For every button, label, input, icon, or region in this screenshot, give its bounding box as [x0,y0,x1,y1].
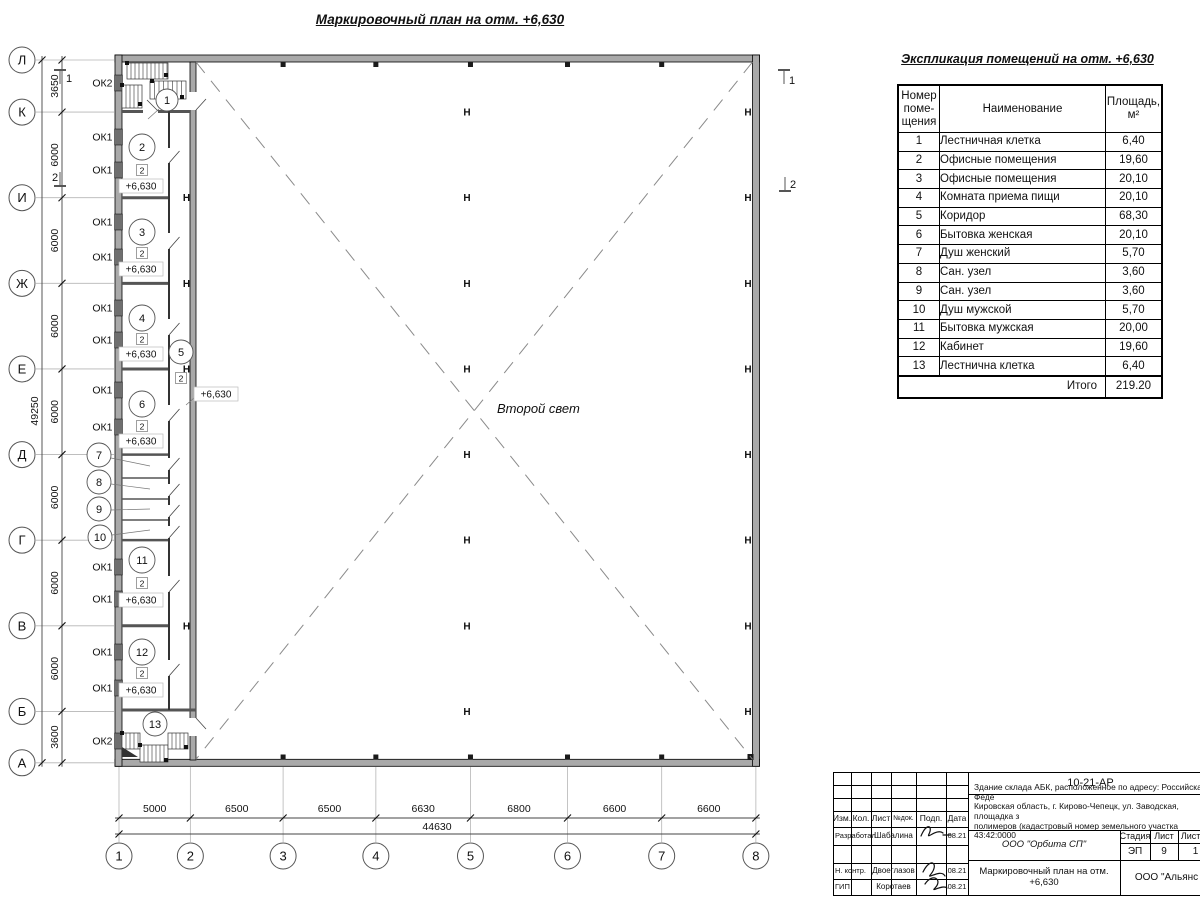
table-row: 3Офисные помещения20,10 [898,170,1162,189]
wall-top [115,55,760,62]
dimension-value: 6000 [49,314,61,338]
table-cell: 20,00 [1106,319,1163,338]
dimension-value: 6600 [603,803,627,815]
table-row: 4Комната приема пищи20,10 [898,189,1162,208]
second-light-label: Второй свет [497,401,580,416]
table-cell: 6,40 [1106,133,1163,152]
door-opening [189,718,197,736]
type-badge: 2 [140,335,145,345]
dimension-total: 49250 [29,396,41,425]
tb-stage-header: Листов [1178,830,1200,843]
column-mark [565,755,570,760]
table-header-area: Площадь,м² [1106,85,1163,133]
elevation-label: +6,630 [126,437,157,448]
elevation-label: +6,630 [126,265,157,276]
axis-label-row: Е [18,361,27,376]
table-cell: 3,60 [1106,263,1163,282]
title-block: Изм.Кол.Лист№док.Подп.ДатаРазработалШаба… [833,772,1200,895]
table-cell: Офисные помещения [940,151,1106,170]
axis-label-row: Л [18,53,27,68]
stair-post [184,745,188,749]
door-leaf [169,237,180,249]
dimension-value: 5000 [143,803,167,815]
door-leaf [169,580,180,592]
window-ок2 [115,733,123,749]
table-cell: 11 [898,319,940,338]
room-number: 12 [136,647,148,659]
window-ок1 [115,419,123,435]
axis-label-col: 3 [279,849,286,864]
axis-label-row: Г [18,533,25,548]
room-number: 11 [136,555,147,567]
column-marker: Н [744,707,751,718]
column-mark [468,755,473,760]
table-cell: 19,60 [1106,151,1163,170]
column-marker: Н [744,279,751,290]
table-cell: 1 [898,133,940,152]
dimension-value: 6630 [411,803,435,815]
dimension-value: 6600 [697,803,721,815]
column-marker: Н [463,707,470,718]
room-number: 5 [178,347,184,359]
room-number: 13 [149,719,161,731]
table-cell: 3 [898,170,940,189]
table-cell: Кабинет [940,338,1106,357]
axis-label-row: И [17,190,26,205]
table-row: 13Лестнична клетка6,40 [898,357,1162,376]
stair-post [120,731,124,735]
stair-post [164,73,168,77]
window-ок1 [115,129,123,145]
table-row: 7Душ женский5,70 [898,245,1162,264]
title-block-line [833,772,834,895]
table-header-name: Наименование [940,85,1106,133]
table-cell: 2 [898,151,940,170]
stair-post [164,758,168,762]
dimension-value: 6000 [49,486,61,510]
column-mark [281,62,286,67]
room-number: 8 [96,477,102,489]
type-badge: 2 [140,422,145,432]
table-cell: Итого [898,376,1106,398]
table-cell: Бытовка женская [940,226,1106,245]
tb-org: ООО "Орбита СП" [968,830,1120,860]
column-marker: Н [463,621,470,632]
dimension-value: 6000 [49,657,61,681]
table-header-number: Номерпоме-щения [898,85,940,133]
room-markers: 122+6,63032+6,63042+6,63052+6,63062+6,63… [87,89,238,736]
table-cell: 6,40 [1106,357,1163,376]
dimension-total: 44630 [422,821,451,833]
table-cell: 10 [898,301,940,320]
elevation-label: +6,630 [126,596,157,607]
tb-org-right: ООО "Альянс [1120,860,1200,895]
dimension-value: 3600 [49,725,61,749]
door-leaf [169,505,180,517]
elevation-label: +6,630 [201,390,232,401]
column-marker: Н [183,193,190,204]
window-label: ОК1 [92,132,112,144]
table-cell: Бытовка мужская [940,319,1106,338]
axis-label-col: 4 [372,849,379,864]
table-total-row: Итого219.20 [898,376,1162,398]
type-badge: 2 [179,374,184,384]
stair-post [150,79,154,83]
section-label: 2 [52,172,58,184]
window-label: ОК1 [92,683,112,695]
table-cell: Комната приема пищи [940,189,1106,208]
window-ок1 [115,214,123,230]
table-cell: Сан. узел [940,263,1106,282]
column-marker: Н [463,536,470,547]
window-label: ОК1 [92,647,112,659]
tb-role: Разработал [835,827,873,845]
table-row: 6Бытовка женская20,10 [898,226,1162,245]
tb-header-cell: №док. [891,811,916,827]
table-cell: 7 [898,245,940,264]
section-label: 1 [789,75,795,87]
type-badge: 2 [140,579,145,589]
table-cell: Лестничная клетка [940,133,1106,152]
column-mark [373,62,378,67]
table-row: 10Душ мужской5,70 [898,301,1162,320]
explication-table: Номерпоме-щения Наименование Площадь,м² … [897,84,1163,399]
stair-post [120,83,124,87]
window-label: ОК1 [92,252,112,264]
tb-header-cell: Изм. [833,811,851,827]
table-row: 8Сан. узел3,60 [898,263,1162,282]
type-badge: 2 [140,249,145,259]
axis-label-row: В [18,618,27,633]
wall-bottom [115,759,760,766]
window-ок1 [115,382,123,398]
tb-name: Шабалина [871,827,916,845]
stair-post [138,743,142,747]
door-leaf [169,458,180,470]
axis-label-col: 1 [115,849,122,864]
table-cell: 12 [898,338,940,357]
column-marker: Н [463,279,470,290]
column-marker: Н [744,450,751,461]
door-leaf [196,99,206,110]
table-cell: Коридор [940,207,1106,226]
column-marker: Н [463,108,470,119]
wall-right [753,55,760,766]
tb-drawing-title: Маркировочный план на отм.+6,630 [968,860,1120,895]
room-number: 1 [164,95,170,107]
signatures [916,822,956,897]
tb-stage-header: Стадия [1120,830,1150,843]
window-label: ОК1 [92,303,112,315]
elevation-label: +6,630 [126,686,157,697]
window-label: ОК1 [92,217,112,229]
column-marker: Н [183,621,190,632]
window-label: ОК1 [92,335,112,347]
table-cell: 3,60 [1106,282,1163,301]
dimension-value: 6500 [225,803,249,815]
tb-stage-value: 1 [1178,843,1200,860]
table-row: 1Лестничная клетка6,40 [898,133,1162,152]
room-number: 9 [96,504,102,516]
tb-stage-header: Лист [1150,830,1178,843]
table-cell: 5,70 [1106,245,1163,264]
window-label: ОК1 [92,562,112,574]
type-badge: 2 [140,669,145,679]
table-cell: 20,10 [1106,170,1163,189]
table-cell: 219.20 [1106,376,1163,398]
table-cell: 68,30 [1106,207,1163,226]
table-cell: 5 [898,207,940,226]
axis-label-row: К [18,105,26,120]
door-leaf [169,526,180,538]
title-block-line [833,772,969,773]
room-number: 2 [139,142,145,154]
column-mark [373,755,378,760]
dimension-value: 6000 [49,400,61,424]
window-ок1 [115,332,123,348]
table-cell: 20,10 [1106,226,1163,245]
tb-header-cell: Кол. [851,811,871,827]
elevation-label: +6,630 [126,182,157,193]
elevation-label: +6,630 [126,350,157,361]
stair-flight [122,733,140,749]
column-marker: Н [744,364,751,375]
room-number: 3 [139,227,145,239]
room-number: 10 [94,532,106,544]
column-mark [659,755,664,760]
room-number: 6 [139,399,145,411]
door-leaf [169,484,180,496]
tb-address: Здание склада АБК, расположенное по адре… [968,794,1200,830]
table-row: 2Офисные помещения19,60 [898,151,1162,170]
axis-label-row: Б [18,704,27,719]
table-cell: Душ мужской [940,301,1106,320]
dimension-value: 6800 [507,803,531,815]
table-cell: Сан. узел [940,282,1106,301]
title-block-line [833,798,969,799]
signature [923,863,947,890]
column-marker: Н [183,279,190,290]
column-marker: Н [744,621,751,632]
table-cell: 20,10 [1106,189,1163,208]
door-leaf [169,409,180,421]
column-marker: Н [744,536,751,547]
table-cell: Душ женский [940,245,1106,264]
axis-label-row: А [18,755,27,770]
table-cell: Офисные помещения [940,170,1106,189]
window-label: ОК1 [92,422,112,434]
window-label: ОК1 [92,594,112,606]
column-mark [565,62,570,67]
table-cell: 9 [898,282,940,301]
column-mark [281,755,286,760]
window-ок1 [115,162,123,178]
room-number: 4 [139,313,145,325]
stair-post [125,61,129,65]
door-leaf [169,323,180,335]
title-block-line [968,895,1200,896]
window-ок1 [115,559,123,575]
column-marker: Н [463,364,470,375]
table-row: 12Кабинет19,60 [898,338,1162,357]
door-leaf [196,718,206,729]
title-block-line [833,785,969,786]
signature [921,827,951,836]
window-label: ОК1 [92,165,112,177]
door-opening [189,92,197,110]
axis-label-col: 2 [187,849,194,864]
table-cell: 5,70 [1106,301,1163,320]
dimension-value: 6000 [49,143,61,167]
section-label: 1 [66,73,72,85]
tb-name: Коротаев [871,879,916,895]
tb-stage-value: ЭП [1120,843,1150,860]
type-badge: 2 [140,166,145,176]
section-label: 2 [790,179,796,191]
room-number: 7 [96,450,102,462]
door-leaf [169,664,180,676]
table-cell: 13 [898,357,940,376]
dimension-value: 6500 [318,803,342,815]
door-leaf [169,151,180,163]
column-marker: Н [744,108,751,119]
column-mark [468,62,473,67]
void-diagonals: Второй свет [196,62,753,759]
column-marker: Н [463,193,470,204]
dimension-value: 6000 [49,571,61,595]
table-cell: 4 [898,189,940,208]
column-mark [659,62,664,67]
dimension-value: 6000 [49,229,61,253]
axis-label-col: 5 [467,849,474,864]
window-label: ОК2 [92,736,112,748]
tb-header-cell: Лист [871,811,891,827]
table-cell: 19,60 [1106,338,1163,357]
tb-name: Двоеглазов [871,863,916,879]
window-label: ОК2 [92,78,112,90]
window-ок1 [115,644,123,660]
column-marker: Н [744,193,751,204]
tb-stage-value: 9 [1150,843,1178,860]
table-row: 5Коридор68,30 [898,207,1162,226]
stair-flight [127,63,168,79]
axis-label-col: 8 [752,849,759,864]
column-markers: НННННННННННННННННННН [183,108,752,718]
axis-label-col: 7 [658,849,665,864]
column-marker: Н [463,450,470,461]
table-cell: 6 [898,226,940,245]
table-cell: Лестнична клетка [940,357,1106,376]
window-ок1 [115,300,123,316]
stair-post [180,95,184,99]
stair-post [138,102,142,106]
table-row: 9Сан. узел3,60 [898,282,1162,301]
walls [115,55,760,766]
table-cell: 8 [898,263,940,282]
table-row: 11Бытовка мужская20,00 [898,319,1162,338]
axis-label-row: Д [18,447,27,462]
dimension-value: 3650 [49,74,61,98]
tb-role: Н. контр. [835,863,873,879]
tb-role: ГИП [835,879,873,895]
axis-label-col: 6 [564,849,571,864]
drawing-sheet: Маркировочный план на отм. +6,630 Экспли… [0,0,1200,900]
wall-corridor [190,62,196,760]
axis-label-row: Ж [16,276,28,291]
window-label: ОК1 [92,385,112,397]
